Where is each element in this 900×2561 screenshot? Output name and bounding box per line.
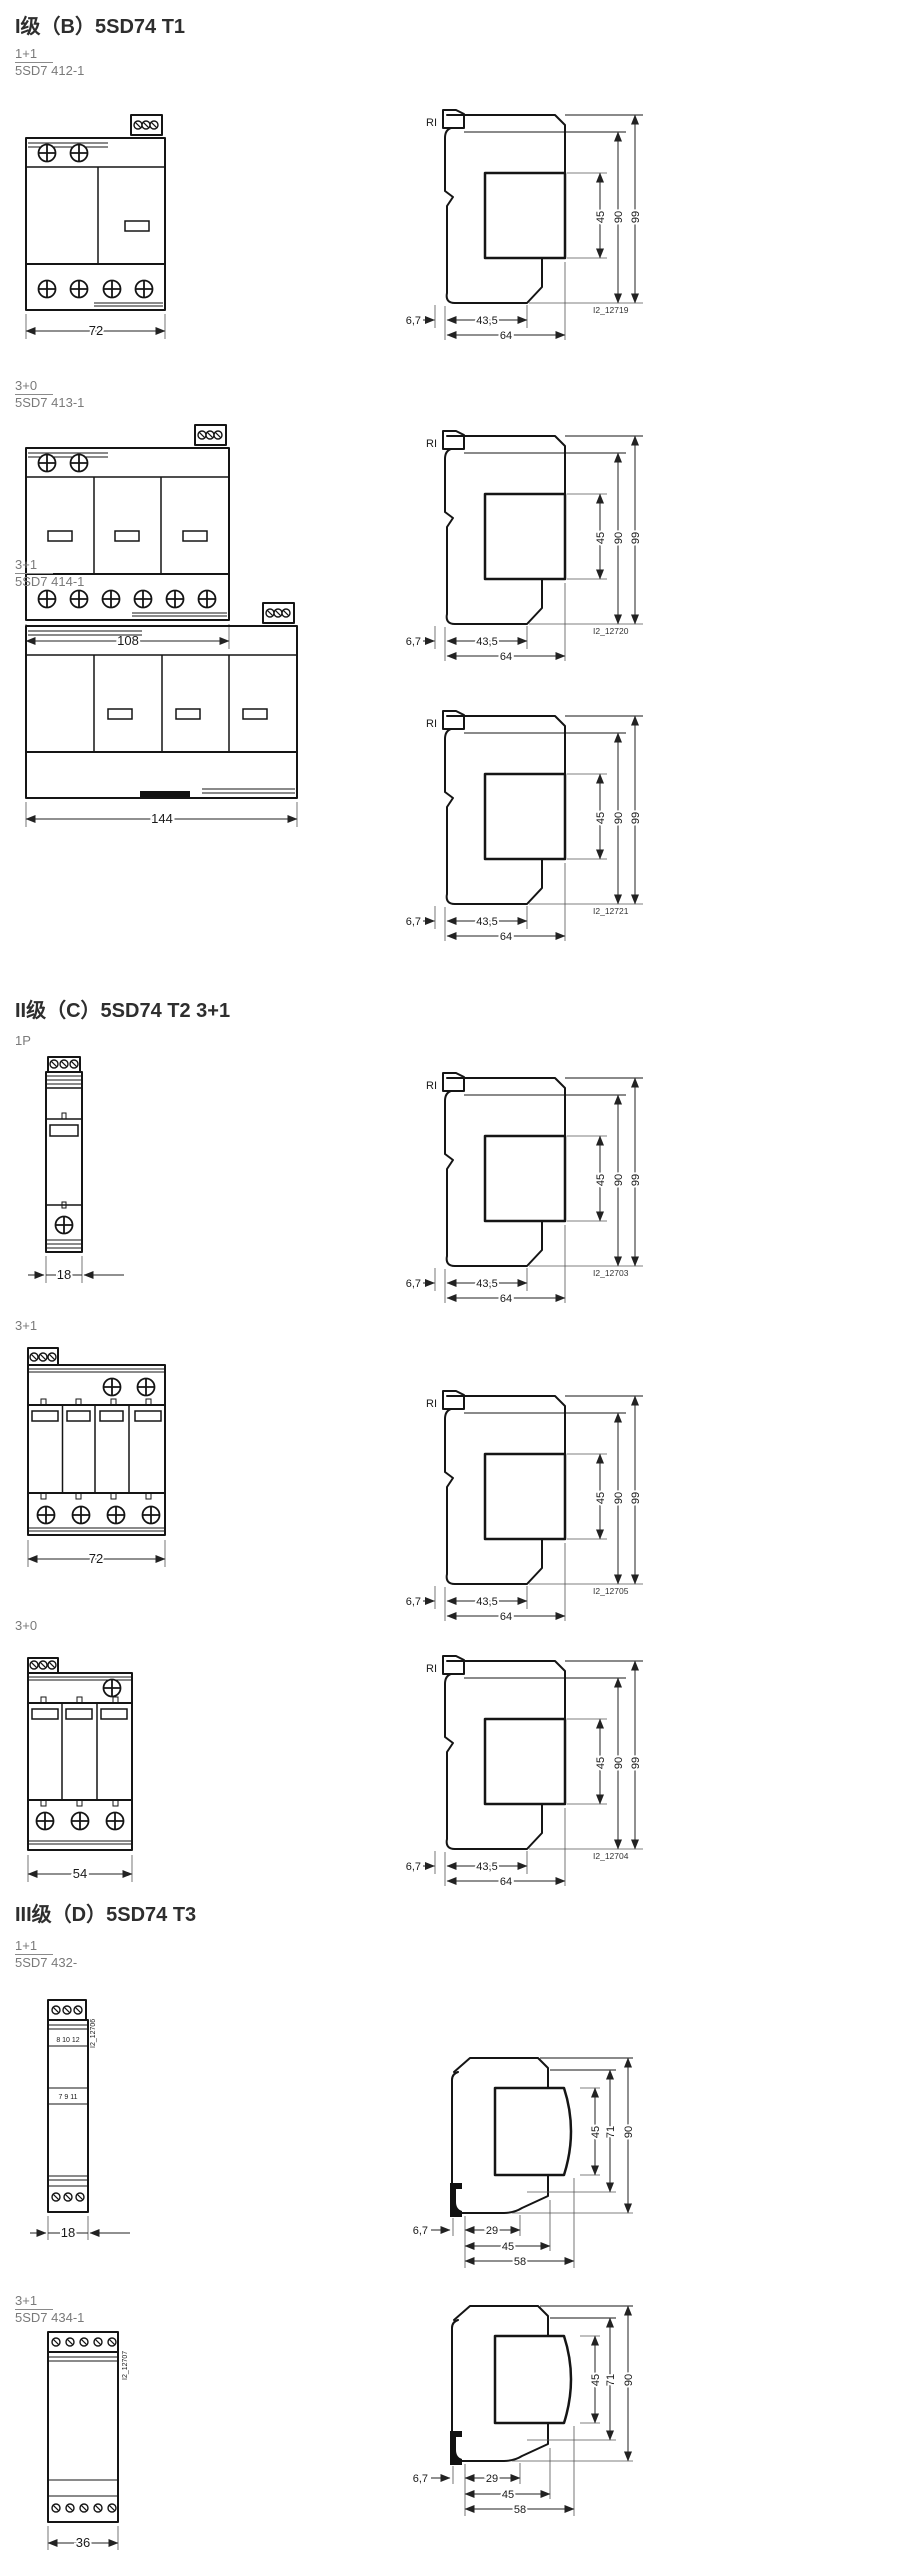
section-heading-t1: I级（B）5SD74 T1 (15, 10, 185, 39)
side-view-t2-1p: RI 45 90 99 6,7 43,5 64 I2_12703 (395, 1070, 665, 1315)
variant-label-434: 3+1 5SD7 434-1 (15, 2293, 84, 2325)
terminal-numbers-bottom: 7 9 11 (59, 2094, 78, 2101)
terminal-screw-icon (66, 2504, 74, 2512)
width-dim: 54 (73, 1866, 87, 1881)
variant-label-t2-30: 3+0 (15, 1618, 37, 1633)
screw-icon (39, 145, 56, 162)
terminal-screw-icon (70, 1060, 78, 1068)
indicator-window (48, 531, 72, 541)
dim-99: 99 (630, 532, 642, 544)
terminal-screw-icon (60, 1060, 68, 1068)
terminal-screw-icon (52, 2006, 60, 2014)
width-dim: 18 (61, 2225, 75, 2240)
dim-90: 90 (613, 532, 625, 544)
device-body (48, 2020, 88, 2212)
dim-6-7: 6,7 (406, 1596, 421, 1608)
dim-43-5: 43,5 (476, 636, 497, 648)
drawing-id: I2_12703 (593, 1268, 629, 1278)
dim-45: 45 (595, 1174, 607, 1186)
dim-64: 64 (500, 1293, 512, 1305)
indicator-window (115, 531, 139, 541)
dim-90: 90 (613, 1757, 625, 1769)
terminal-screw-icon (30, 1353, 38, 1361)
width-dim: 72 (89, 323, 103, 338)
terminal-screw-icon (80, 2504, 88, 2512)
screw-icon (71, 281, 88, 298)
side-profile (431, 2306, 633, 2516)
dim-71: 71 (605, 2126, 617, 2138)
terminal-screw-icon (48, 1661, 56, 1669)
model-number: 5SD7 414-1 (15, 574, 84, 589)
indicator-window (101, 1709, 127, 1719)
indicator-window (66, 1709, 92, 1719)
side-view-5sd7434: 45 71 90 6,7 29 45 58 (400, 2298, 650, 2533)
width-dim: 144 (151, 811, 173, 826)
dim-43-5: 43,5 (476, 1278, 497, 1290)
indicator-window (108, 709, 132, 719)
dim-6-7: 6,7 (413, 2473, 428, 2485)
dim-64: 64 (500, 1611, 512, 1623)
terminal-screw-icon (63, 2006, 71, 2014)
front-view-5sd7432: I2_12706 8 10 12 7 9 11 18 (22, 1998, 152, 2243)
screw-icon (138, 1379, 155, 1396)
dim-6-7: 6,7 (406, 636, 421, 648)
side-view-5sd7413: RI 45 90 99 6,7 43,5 64 I2_12720 (395, 428, 665, 673)
dim-45h: 45 (502, 2241, 514, 2253)
terminal-screw-icon (80, 2338, 88, 2346)
indicator-window (176, 709, 200, 719)
indicator-window (67, 1411, 90, 1421)
screw-icon (39, 455, 56, 472)
dim-71: 71 (605, 2374, 617, 2386)
dim-43-5: 43,5 (476, 315, 497, 327)
screw-icon (104, 1680, 121, 1697)
model-number: 5SD7 434-1 (15, 2310, 84, 2325)
device-body (26, 448, 229, 620)
dim-6-7: 6,7 (406, 315, 421, 327)
screw-icon (104, 281, 121, 298)
dim-43-5: 43,5 (476, 916, 497, 928)
label-window (50, 1125, 78, 1136)
dim-29: 29 (486, 2225, 498, 2237)
terminal-screw-icon (198, 431, 206, 439)
terminal-screw-icon (150, 121, 158, 129)
screw-icon (143, 1507, 160, 1524)
variant-code: 1P (15, 1033, 31, 1048)
terminal-screw-icon (39, 1661, 47, 1669)
dim-64: 64 (500, 651, 512, 663)
terminal-screw-icon (108, 2338, 116, 2346)
dim-45: 45 (590, 2126, 602, 2138)
dim-45: 45 (590, 2374, 602, 2386)
drawing-id: I2_12705 (593, 1586, 629, 1596)
screw-icon (108, 1507, 125, 1524)
dim-64: 64 (500, 1876, 512, 1888)
dim-29: 29 (486, 2473, 498, 2485)
width-dim: 72 (89, 1551, 103, 1566)
terminal-screw-icon (266, 609, 274, 617)
terminal-screw-icon (274, 609, 282, 617)
drawing-id: I2_12719 (593, 305, 629, 315)
variant-label-413: 3+0 5SD7 413-1 (15, 378, 84, 410)
drawing-id: I2_12721 (593, 906, 629, 916)
dim-90: 90 (623, 2126, 635, 2138)
dim-45: 45 (595, 211, 607, 223)
variant-label-414: 3+1 5SD7 414-1 (15, 557, 84, 589)
dim-64: 64 (500, 931, 512, 943)
terminal-screw-icon (214, 431, 222, 439)
variant-label-412: 1+1 5SD7 412-1 (15, 46, 84, 78)
dim-99: 99 (630, 1492, 642, 1504)
terminal-screw-icon (134, 121, 142, 129)
terminal-screw-icon (39, 1353, 47, 1361)
front-view-t2-1p: 18 (22, 1055, 132, 1295)
indicator-window (125, 221, 149, 231)
side-view-t2-30: RI 45 90 99 6,7 43,5 64 I2_12704 (395, 1653, 665, 1898)
screw-icon (107, 1813, 124, 1830)
terminal-screw-icon (50, 1060, 58, 1068)
dim-6-7: 6,7 (413, 2225, 428, 2237)
terminal-screw-icon (74, 2006, 82, 2014)
rail-label: RI (426, 1080, 437, 1092)
dim-45: 45 (595, 532, 607, 544)
screw-icon (39, 281, 56, 298)
side-view-5sd7412: RI 45 90 99 6,7 43,5 64 I2_12719 (395, 107, 665, 352)
front-view-5sd7412: 72 (22, 113, 172, 348)
drawing-id: I2_12706 (90, 2019, 97, 2048)
screw-icon (136, 281, 153, 298)
indicator-window (32, 1709, 58, 1719)
dim-6-7: 6,7 (406, 1861, 421, 1873)
screw-icon (38, 1507, 55, 1524)
rail-label: RI (426, 1398, 437, 1410)
datasheet-page: I级（B）5SD74 T1 1+1 5SD7 412-1 72 RI 45 90… (0, 0, 900, 2561)
dim-99: 99 (630, 1174, 642, 1186)
dim-90: 90 (613, 1492, 625, 1504)
width-dim: 18 (57, 1267, 71, 1282)
variant-code: 3+1 (15, 557, 53, 574)
variant-code: 1+1 (15, 1938, 53, 1955)
terminal-screw-icon (282, 609, 290, 617)
terminal-screw-icon (76, 2193, 84, 2201)
screw-icon (71, 145, 88, 162)
terminal-screw-icon (206, 431, 214, 439)
front-view-t2-31: 72 (22, 1345, 177, 1575)
dim-45: 45 (595, 1492, 607, 1504)
terminal-numbers-top: 8 10 12 (56, 2037, 79, 2044)
terminal-screw-icon (94, 2504, 102, 2512)
variant-code: 3+0 (15, 1618, 37, 1633)
dim-58: 58 (514, 2256, 526, 2268)
dim-90: 90 (613, 812, 625, 824)
dim-43-5: 43,5 (476, 1596, 497, 1608)
label-stripe (140, 791, 190, 797)
variant-label-432: 1+1 5SD7 432- (15, 1938, 77, 1970)
variant-code: 1+1 (15, 46, 53, 63)
section-heading-t2: II级（C）5SD74 T2 3+1 (15, 994, 230, 1023)
dim-58: 58 (514, 2504, 526, 2516)
section-heading-t3: III级（D）5SD74 T3 (15, 1898, 196, 1927)
variant-label-1p: 1P (15, 1033, 31, 1048)
indicator-window (183, 531, 207, 541)
model-number: 5SD7 413-1 (15, 395, 84, 410)
screw-icon (72, 1813, 89, 1830)
screw-icon (71, 455, 88, 472)
dim-99: 99 (630, 211, 642, 223)
variant-code: 3+1 (15, 1318, 37, 1333)
rail-label: RI (426, 1663, 437, 1675)
side-view-5sd7432: 45 71 90 6,7 29 45 58 (400, 2050, 650, 2285)
variant-label-t2-31: 3+1 (15, 1318, 37, 1333)
front-view-5sd7414: 144 (22, 601, 307, 836)
terminal-screw-icon (94, 2338, 102, 2346)
dim-99: 99 (630, 1757, 642, 1769)
rail-label: RI (426, 438, 437, 450)
dim-6-7: 6,7 (406, 1278, 421, 1290)
dim-64: 64 (500, 330, 512, 342)
indicator-window (135, 1411, 161, 1421)
rail-label: RI (426, 117, 437, 129)
dim-45: 45 (595, 812, 607, 824)
side-view-t2-31: RI 45 90 99 6,7 43,5 64 I2_12705 (395, 1388, 665, 1633)
front-view-5sd7434: I2_12707 36 (22, 2330, 162, 2555)
screw-icon (73, 1507, 90, 1524)
screw-icon (104, 1379, 121, 1396)
model-number: 5SD7 412-1 (15, 63, 84, 78)
screw-icon (56, 1217, 73, 1234)
dim-90: 90 (613, 1174, 625, 1186)
model-number: 5SD7 432- (15, 1955, 77, 1970)
side-profile (431, 2058, 633, 2268)
drawing-id: I2_12704 (593, 1851, 629, 1861)
indicator-window (243, 709, 267, 719)
drawing-id: I2_12707 (122, 2351, 129, 2380)
indicator-window (32, 1411, 58, 1421)
dim-90: 90 (613, 211, 625, 223)
terminal-screw-icon (52, 2338, 60, 2346)
dim-45h: 45 (502, 2489, 514, 2501)
dim-43-5: 43,5 (476, 1861, 497, 1873)
terminal-screw-icon (52, 2193, 60, 2201)
front-view-t2-30: 54 (22, 1655, 142, 1890)
drawing-id: I2_12720 (593, 626, 629, 636)
width-dim: 36 (76, 2535, 90, 2550)
terminal-screw-icon (48, 1353, 56, 1361)
terminal-screw-icon (52, 2504, 60, 2512)
dim-99: 99 (630, 812, 642, 824)
latch-tab (62, 1113, 66, 1119)
terminal-screw-icon (108, 2504, 116, 2512)
terminal-screw-icon (66, 2338, 74, 2346)
terminal-screw-icon (142, 121, 150, 129)
terminal-screw-icon (64, 2193, 72, 2201)
dim-6-7: 6,7 (406, 916, 421, 928)
screw-icon (37, 1813, 54, 1830)
dim-90: 90 (623, 2374, 635, 2386)
side-view-5sd7414: RI 45 90 99 6,7 43,5 64 I2_12721 (395, 708, 665, 953)
indicator-window (100, 1411, 123, 1421)
variant-code: 3+1 (15, 2293, 53, 2310)
dim-45: 45 (595, 1757, 607, 1769)
variant-code: 3+0 (15, 378, 53, 395)
rail-label: RI (426, 718, 437, 730)
terminal-screw-icon (30, 1661, 38, 1669)
